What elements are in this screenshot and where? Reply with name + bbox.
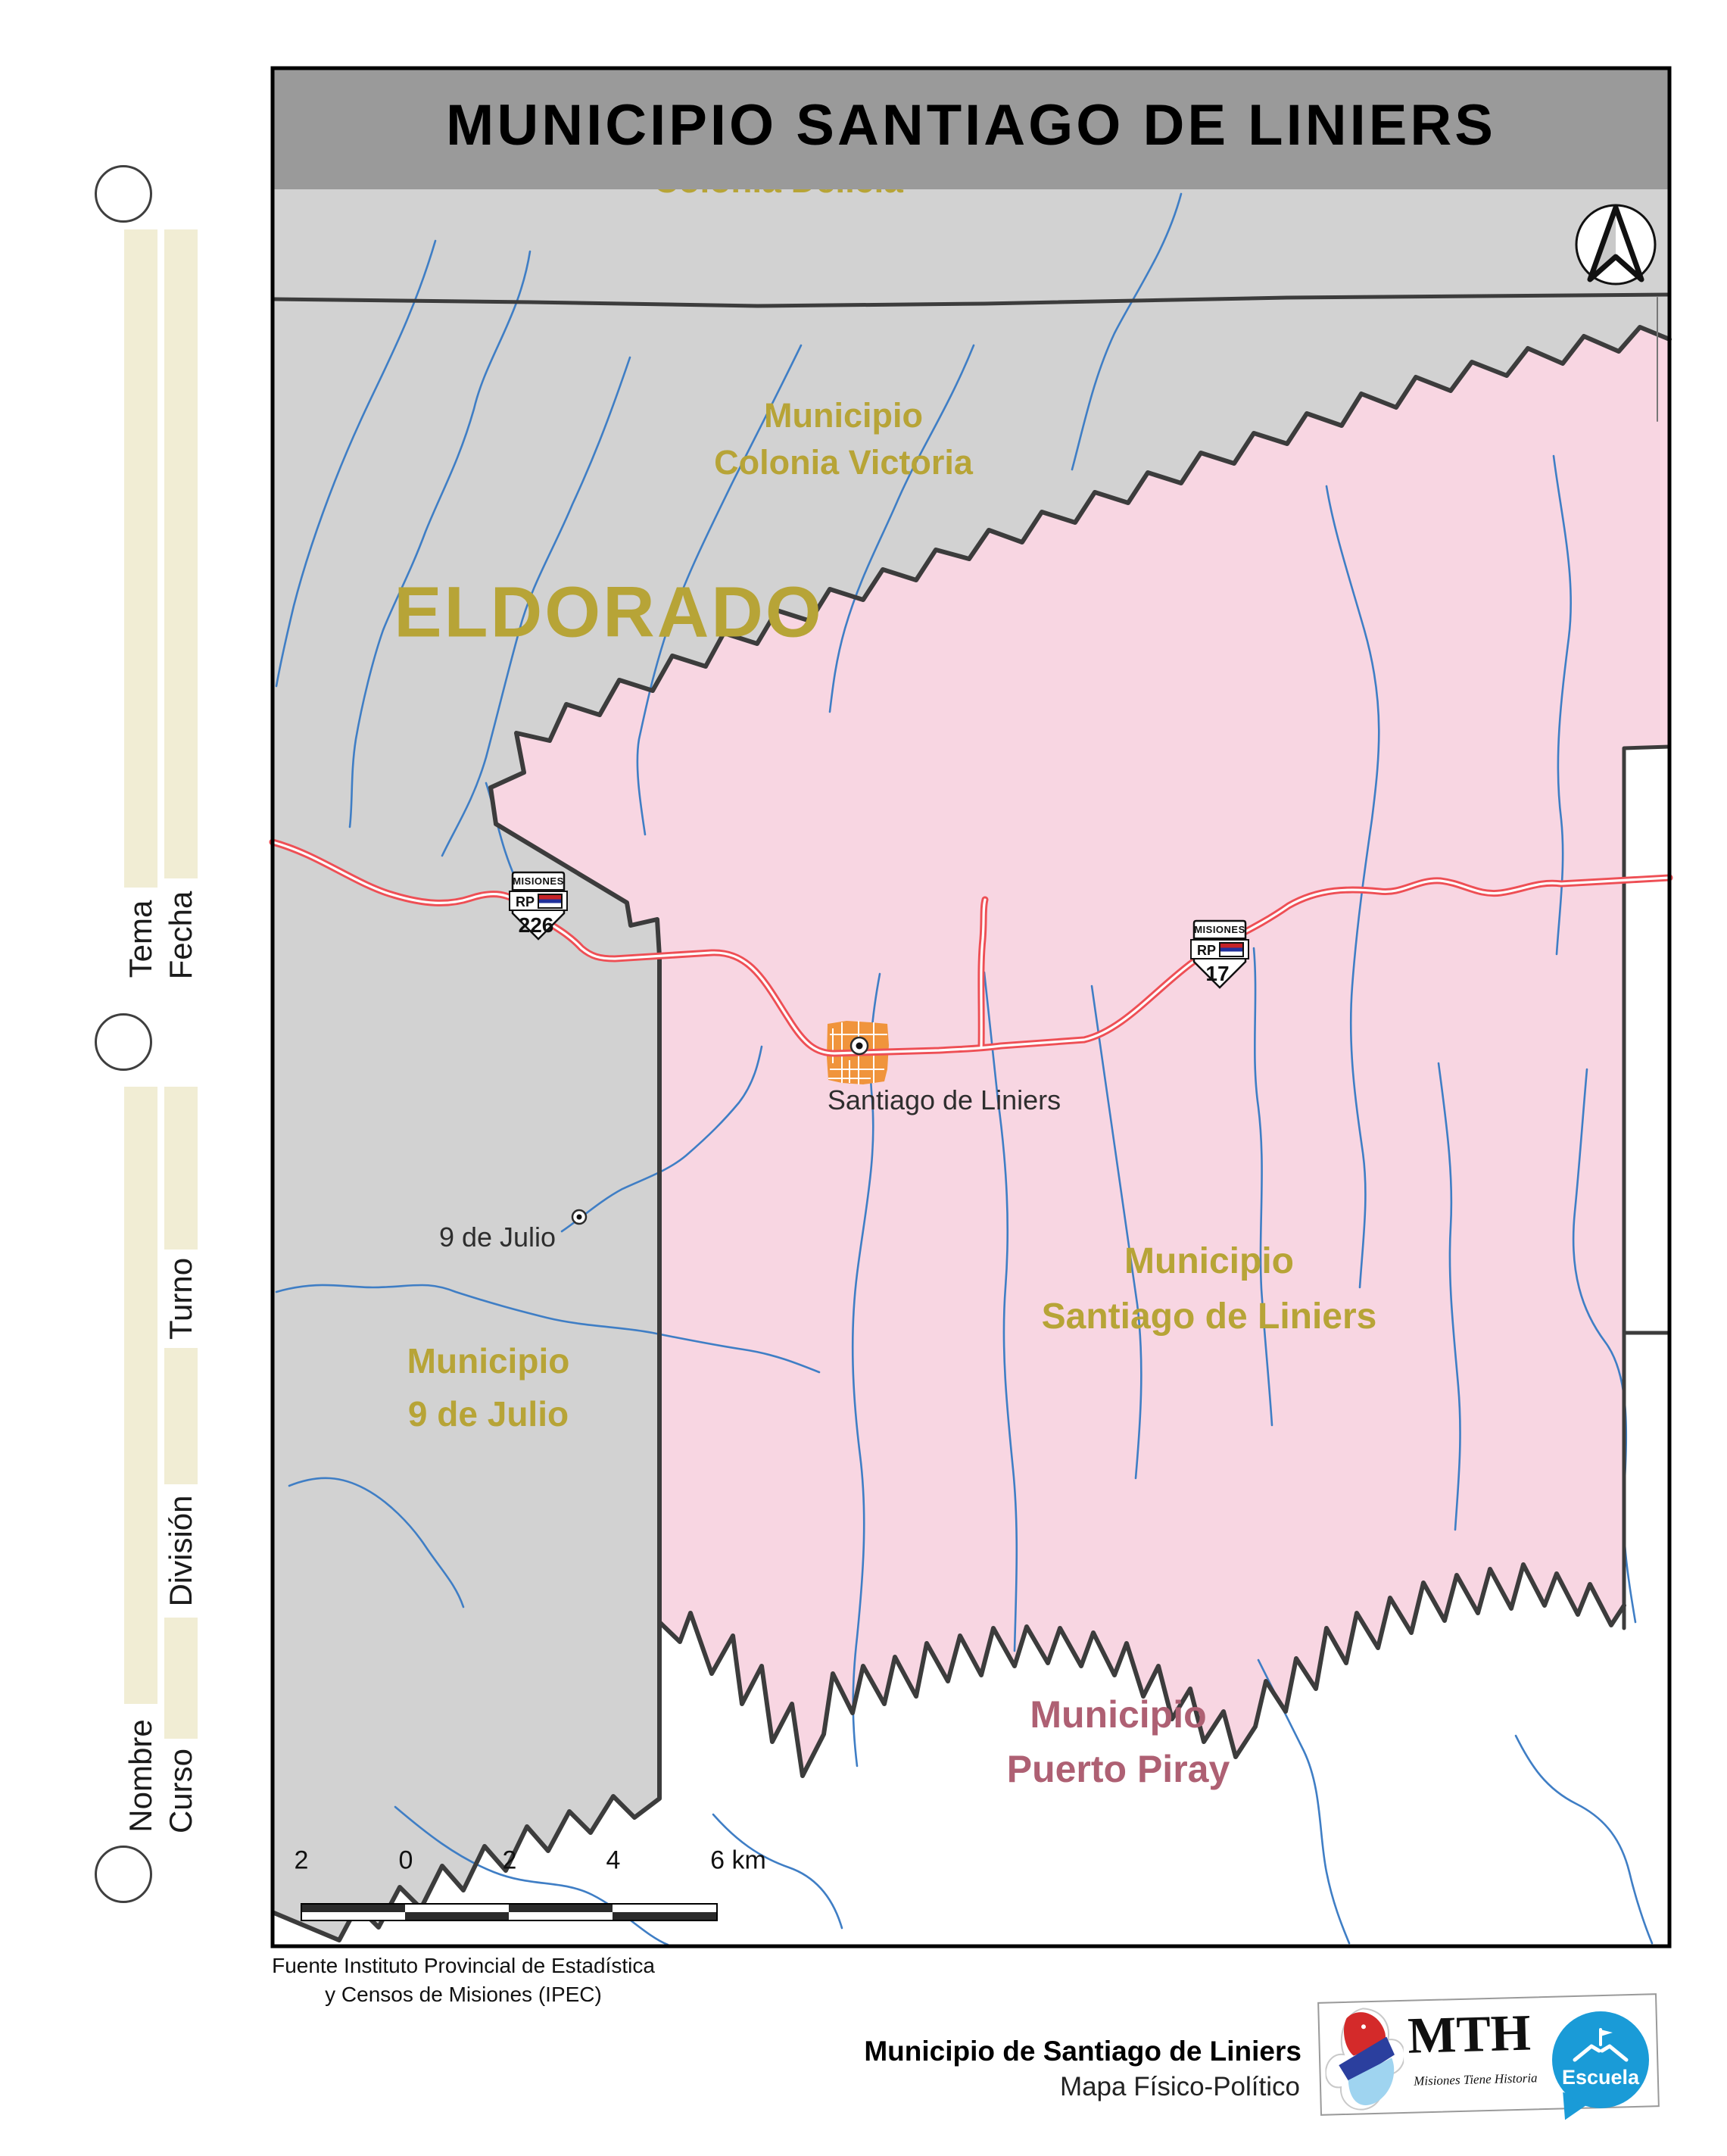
scale-tick-2: 2	[503, 1846, 517, 1876]
map-title: MUNICIPIO SANTIAGO DE LINIERS	[273, 92, 1669, 158]
mth-wordmark: MTH	[1407, 2003, 1531, 2066]
scale-bar	[301, 1904, 717, 1920]
misiones-flag-icon	[538, 894, 563, 909]
scale-tick-0: 2	[295, 1846, 309, 1876]
town-marker-9-de-julio	[572, 1210, 586, 1224]
source-note-line1: Fuente Instituto Provincial de Estadísti…	[272, 1954, 655, 1978]
misiones-flag-icon	[1219, 942, 1244, 957]
label-municipio-puerto-piray: Municipio Puerto Piray	[1007, 1687, 1230, 1796]
escuela-label: Escuela	[1552, 2066, 1649, 2089]
shield-region-label: MISIONES	[1190, 924, 1249, 935]
shield-type-label: RP	[1197, 943, 1216, 959]
shield-type-label: RP	[516, 894, 535, 910]
source-note-line2: y Censos de Misiones (IPEC)	[325, 1983, 602, 2007]
footer-map-title: Municipio de Santiago de Liniers	[864, 2036, 1301, 2067]
label-eldorado: ELDORADO	[394, 577, 824, 649]
label-town-santiago: Santiago de Liniers	[828, 1087, 1061, 1114]
town-marker-santiago	[851, 1037, 868, 1054]
north-arrow-icon	[1576, 205, 1655, 284]
worksheet-page: { "title": "MUNICIPIO SANTIAGO DE LINIER…	[0, 0, 1727, 2156]
scale-tick-4: 6 km	[710, 1846, 766, 1876]
shield-region-label: MISIONES	[509, 875, 568, 887]
footer-map-subtitle: Mapa Físico-Político	[1060, 2072, 1300, 2102]
scale-tick-1: 0	[399, 1846, 413, 1876]
misiones-province-icon	[1323, 2003, 1405, 2114]
mth-tagline: Misiones Tiene Historia	[1400, 2070, 1551, 2089]
escuela-logo: Escuela	[1552, 2011, 1649, 2108]
label-colonia-victoria: Municipio Colonia Victoria	[714, 392, 973, 486]
school-roof-icon	[1570, 2022, 1631, 2064]
route-shield-rp226: MISIONES RP 226	[509, 871, 568, 941]
map-canvas: Colonia Delicia	[0, 0, 1727, 2156]
route-shield-rp17: MISIONES RP 17	[1190, 919, 1249, 990]
scale-tick-3: 4	[606, 1846, 621, 1876]
label-town-9-de-julio: 9 de Julio	[439, 1224, 556, 1251]
label-municipio-9-de-julio: Municipio 9 de Julio	[407, 1334, 570, 1440]
shield-number: 17	[1190, 962, 1245, 986]
label-municipio-santiago: Municipio Santiago de Liniers	[1042, 1234, 1377, 1344]
shield-number: 226	[509, 913, 563, 938]
